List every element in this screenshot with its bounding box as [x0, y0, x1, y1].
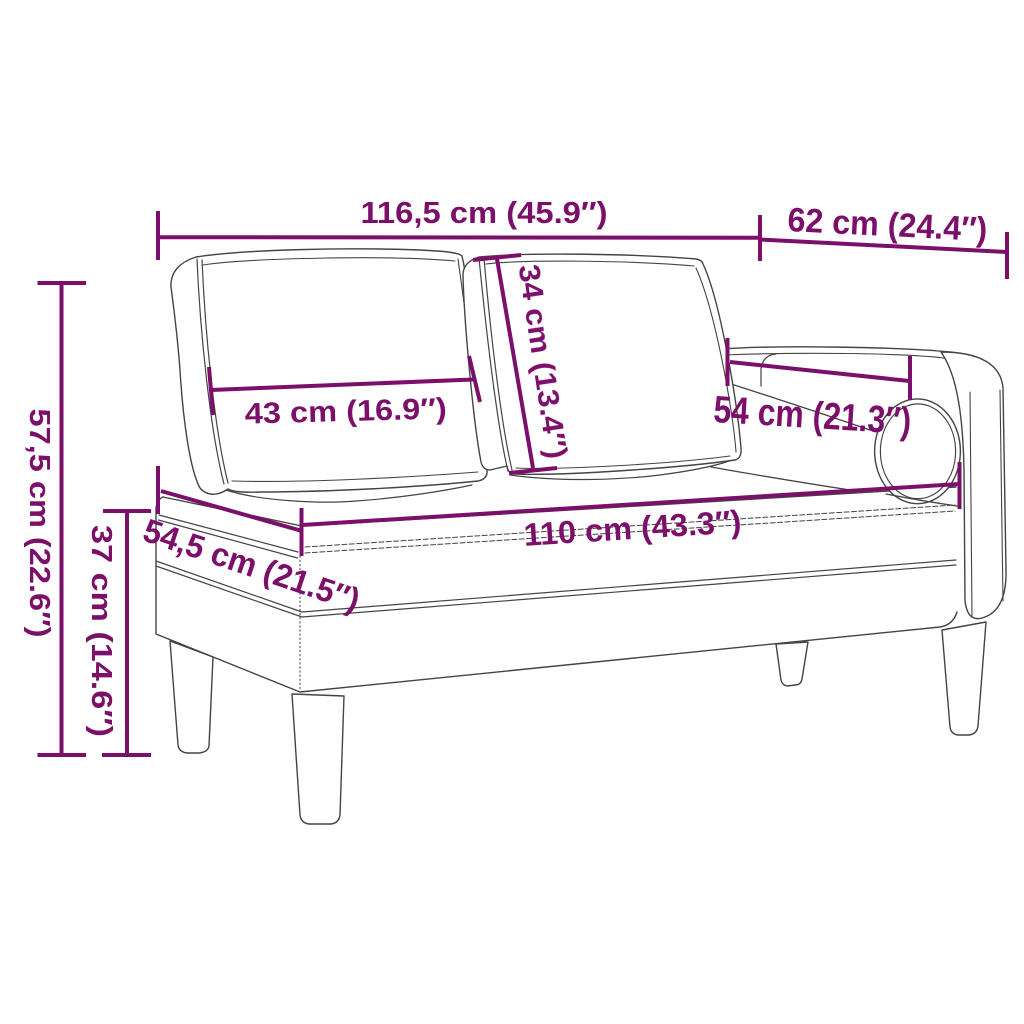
- svg-text:37 cm (14.6″): 37 cm (14.6″): [85, 525, 117, 737]
- svg-text:116,5 cm (45.9″): 116,5 cm (45.9″): [361, 195, 608, 230]
- svg-text:43 cm (16.9″): 43 cm (16.9″): [244, 392, 447, 430]
- svg-text:57,5 cm (22.6″): 57,5 cm (22.6″): [23, 409, 55, 638]
